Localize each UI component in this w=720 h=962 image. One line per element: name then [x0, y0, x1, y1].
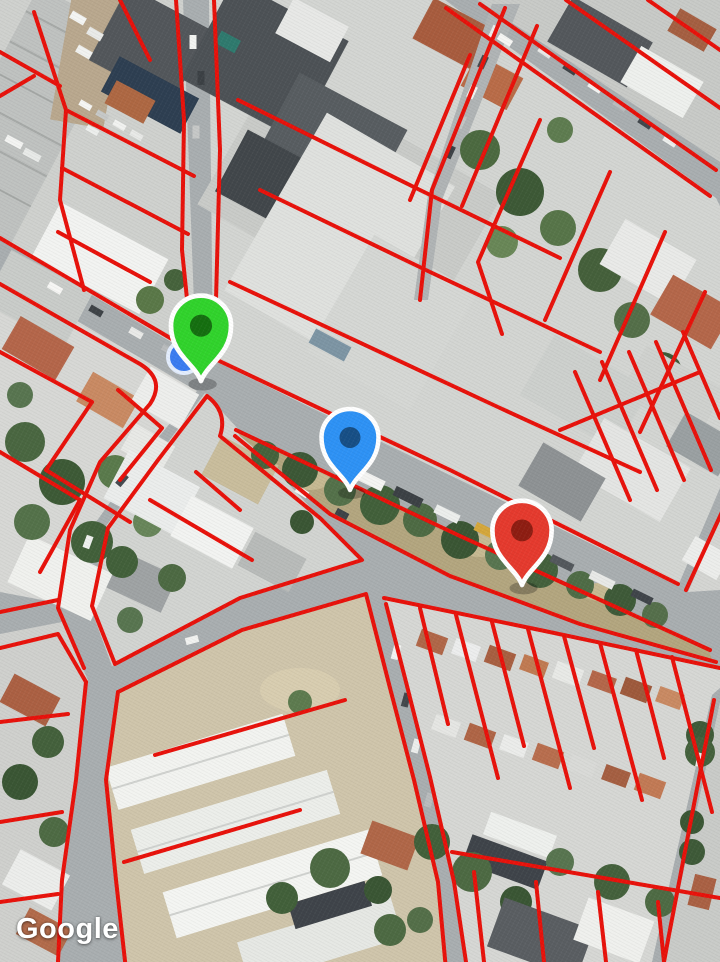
google-watermark: Google — [16, 913, 119, 946]
satellite-map[interactable]: Google — [0, 0, 720, 962]
map-canvas[interactable] — [0, 0, 720, 962]
